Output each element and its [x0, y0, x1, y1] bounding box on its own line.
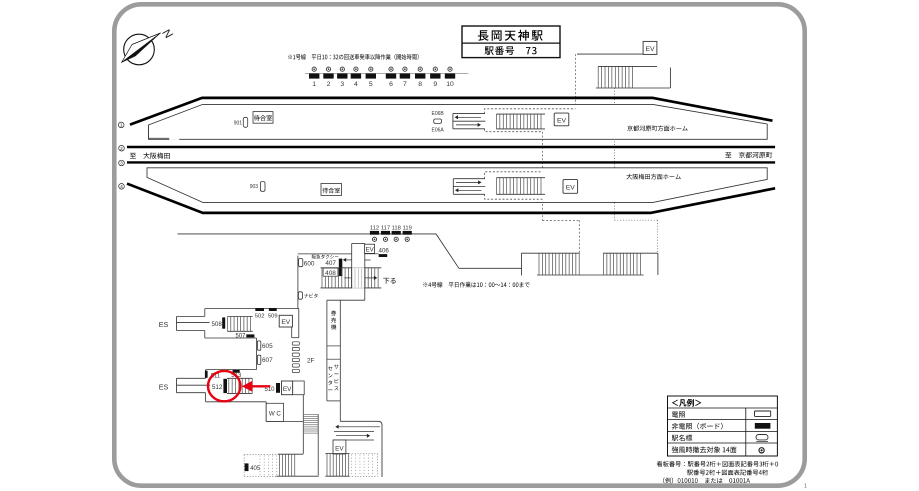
svg-text:8: 8 [418, 81, 422, 88]
svg-text:7: 7 [403, 81, 407, 88]
svg-text:3: 3 [340, 81, 344, 88]
svg-text:507: 507 [235, 334, 246, 340]
svg-text:6: 6 [389, 81, 393, 88]
svg-text:903: 903 [250, 184, 259, 190]
svg-text:5: 5 [369, 81, 373, 88]
svg-text:600: 600 [304, 260, 315, 267]
svg-text:508: 508 [211, 321, 222, 328]
svg-text:4: 4 [354, 81, 358, 88]
svg-text:510: 510 [265, 387, 276, 393]
svg-text:EV: EV [281, 319, 290, 326]
svg-text:407: 407 [325, 260, 336, 267]
svg-text:2: 2 [327, 81, 331, 88]
svg-text:9: 9 [433, 81, 437, 88]
svg-text:1: 1 [804, 484, 807, 490]
svg-text:119: 119 [403, 226, 412, 232]
svg-text:502: 502 [255, 314, 265, 320]
svg-text:E06B: E06B [432, 111, 445, 117]
svg-text:4: 4 [120, 184, 123, 190]
svg-text:W C: W C [269, 411, 282, 418]
svg-text:901: 901 [234, 120, 243, 126]
svg-text:ES: ES [159, 320, 169, 329]
svg-text:1: 1 [312, 81, 316, 88]
svg-text:E06A: E06A [432, 128, 445, 134]
svg-text:EV: EV [335, 445, 344, 452]
svg-text:118: 118 [392, 226, 401, 232]
svg-text:509: 509 [268, 314, 278, 320]
svg-text:607: 607 [262, 357, 273, 364]
svg-text:605: 605 [262, 343, 273, 350]
svg-text:1: 1 [120, 123, 123, 129]
svg-text:405: 405 [250, 466, 261, 472]
svg-text:EV: EV [566, 185, 576, 192]
svg-text:EV: EV [283, 386, 292, 393]
svg-text:3: 3 [120, 161, 123, 167]
svg-text:10: 10 [446, 81, 454, 88]
svg-text:512: 512 [212, 384, 223, 391]
svg-text:EV: EV [645, 46, 655, 53]
svg-text:EV: EV [365, 247, 374, 254]
svg-text:117: 117 [381, 226, 390, 232]
svg-text:408: 408 [325, 270, 336, 277]
svg-text:EV: EV [557, 117, 567, 124]
svg-text:2F: 2F [307, 358, 315, 365]
svg-text:112: 112 [370, 226, 379, 232]
svg-text:406: 406 [379, 247, 390, 254]
svg-text:ES: ES [159, 382, 169, 391]
svg-text:2: 2 [120, 146, 123, 152]
